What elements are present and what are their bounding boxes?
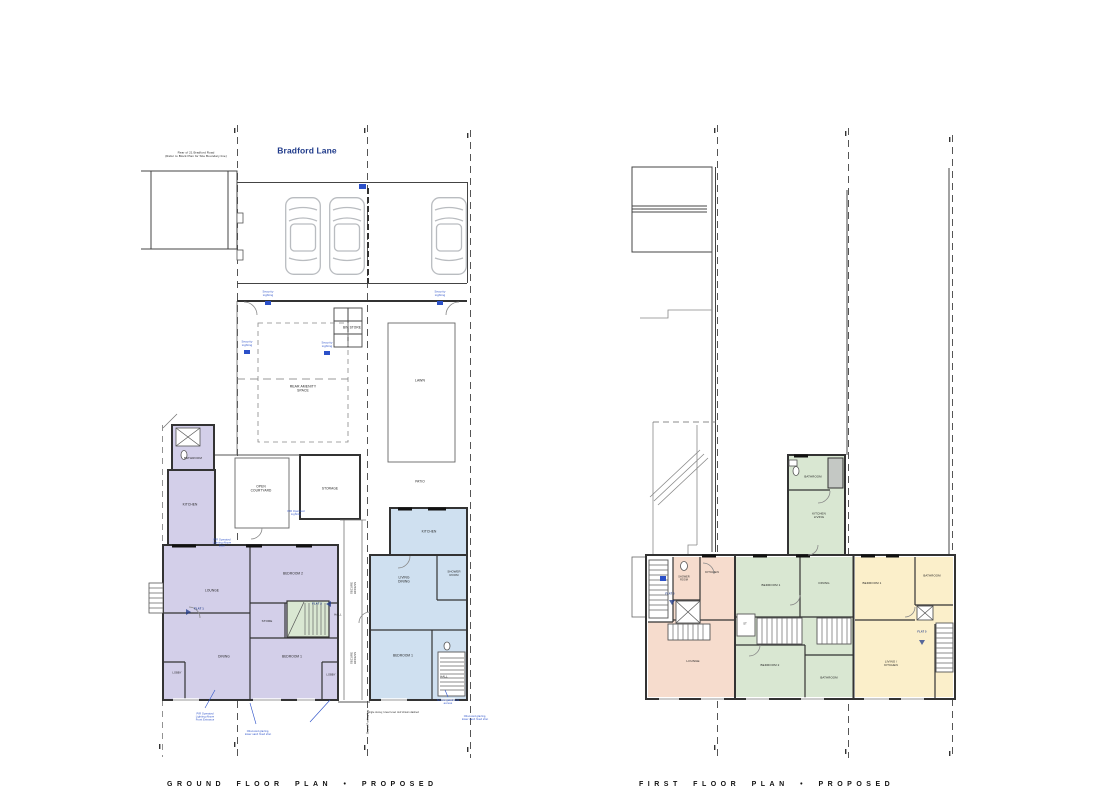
plans-linework bbox=[0, 0, 1104, 800]
first-floor-drawing bbox=[632, 125, 955, 758]
ground-floor-drawing bbox=[141, 125, 471, 758]
first-floor-caption: FIRST FLOOR PLAN • PROPOSED bbox=[639, 781, 894, 788]
architectural-drawing-sheet: Bradford LaneRear of 21 Bradford Road (R… bbox=[0, 0, 1104, 800]
ground-floor-caption: GROUND FLOOR PLAN • PROPOSED bbox=[167, 781, 438, 788]
